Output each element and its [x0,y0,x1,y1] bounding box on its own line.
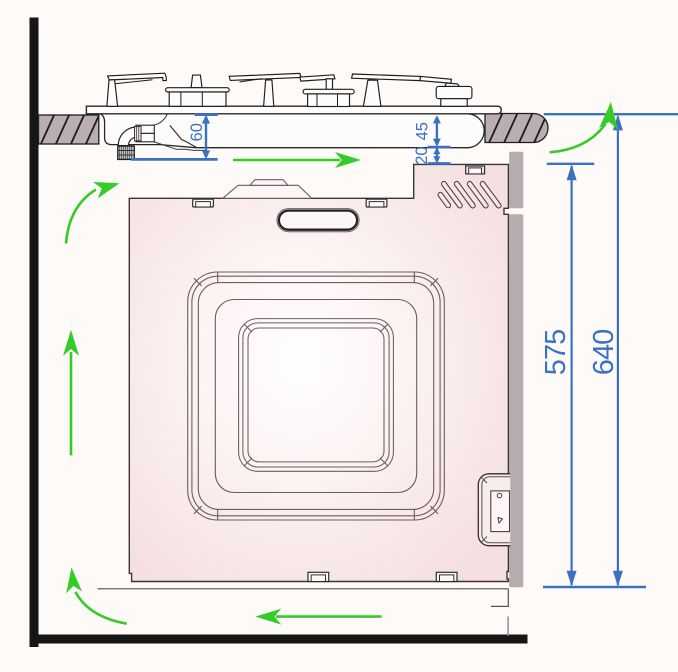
svg-text:20: 20 [413,146,431,164]
svg-text:575: 575 [540,330,572,375]
svg-text:640: 640 [588,330,620,375]
svg-text:45: 45 [414,122,432,140]
svg-text:60: 60 [188,123,206,141]
